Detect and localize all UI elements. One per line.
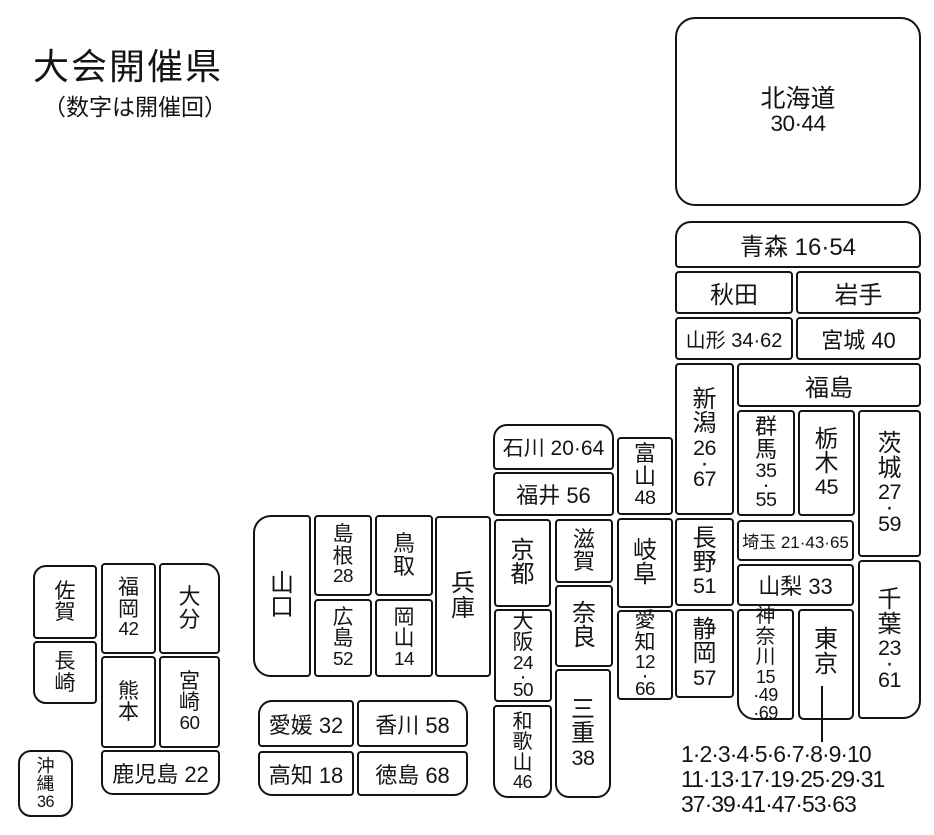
prefecture-tile-miyazaki: 宮崎60	[159, 656, 220, 748]
prefecture-tile-okinawa: 沖縄36	[18, 750, 73, 817]
prefecture-tile-kanagawa: 神奈川15·49·69	[737, 609, 794, 720]
prefecture-tile-nagasaki: 長崎	[33, 641, 97, 704]
prefecture-tile-tokyo: 東京	[798, 609, 854, 720]
prefecture-tile-niigata: 新潟26·67	[675, 363, 734, 515]
tokyo-host-numbers: 1·2·3·4·5·6·7·8·9·1011·13·17·19·25·29·31…	[681, 742, 884, 816]
prefecture-tile-okayama: 岡山14	[375, 599, 433, 677]
prefecture-tile-miyagi: 宮城 40	[796, 317, 921, 360]
prefecture-tile-kochi: 高知 18	[258, 751, 354, 796]
prefecture-tile-iwate: 岩手	[796, 271, 921, 314]
prefecture-tile-toyama: 富山48	[617, 437, 673, 515]
prefecture-tile-osaka: 大阪24·50	[494, 609, 552, 702]
prefecture-tile-wakayama: 和歌山46	[493, 705, 552, 798]
prefecture-tile-akita: 秋田	[675, 271, 793, 314]
prefecture-tile-hokkaido: 北海道30·44	[675, 17, 921, 206]
prefecture-tile-ibaraki: 茨城27·59	[858, 410, 921, 557]
prefecture-tile-shizuoka: 静岡57	[675, 609, 734, 698]
prefecture-tile-fukushima: 福島	[737, 363, 921, 407]
prefecture-tile-yamanashi: 山梨 33	[737, 564, 854, 606]
prefecture-tile-kyoto: 京都	[494, 519, 551, 607]
prefecture-tile-yamagata: 山形 34·62	[675, 317, 793, 360]
map-subtitle: （数字は開催回）	[43, 88, 227, 122]
prefecture-tile-hyogo: 兵庫	[435, 516, 491, 677]
prefecture-tile-tottori: 鳥取	[375, 515, 433, 596]
prefecture-tile-ishikawa: 石川 20·64	[493, 424, 614, 470]
prefecture-tile-nara: 奈良	[555, 585, 613, 667]
prefecture-tile-gunma: 群馬35·55	[737, 410, 795, 516]
prefecture-tile-oita: 大分	[159, 563, 220, 654]
prefecture-tile-gifu: 岐阜	[617, 518, 673, 608]
prefecture-tile-aomori: 青森 16·54	[675, 221, 921, 268]
tokyo-pointer-line	[821, 686, 823, 742]
prefecture-tile-kagoshima: 鹿児島 22	[101, 750, 220, 795]
prefecture-tile-chiba: 千葉23·61	[858, 560, 921, 719]
prefecture-tile-yamaguchi: 山口	[253, 515, 311, 677]
prefecture-tile-ehime: 愛媛 32	[258, 700, 354, 747]
prefecture-tile-hiroshima: 広島52	[314, 599, 372, 677]
prefecture-tile-kagawa: 香川 58	[357, 700, 468, 747]
prefecture-tile-kumamoto: 熊本	[101, 656, 156, 748]
prefecture-tile-tochigi: 栃木45	[798, 410, 855, 516]
prefecture-tile-shiga: 滋賀	[555, 519, 613, 583]
prefecture-tile-fukuoka: 福岡42	[101, 563, 156, 654]
japan-tile-map: 大会開催県 （数字は開催回） 北海道30·44 青森 16·54 秋田 岩手 山…	[0, 0, 934, 835]
map-title: 大会開催県	[33, 38, 223, 90]
prefecture-tile-saitama: 埼玉 21·43·65	[737, 520, 854, 561]
prefecture-tile-aichi: 愛知12·66	[617, 610, 673, 700]
prefecture-tile-shimane: 島根28	[314, 515, 372, 596]
prefecture-tile-fukui: 福井 56	[493, 472, 614, 516]
prefecture-tile-tokushima: 徳島 68	[357, 751, 468, 796]
prefecture-tile-nagano: 長野51	[675, 518, 734, 606]
prefecture-tile-saga: 佐賀	[33, 565, 97, 639]
prefecture-tile-mie: 三重38	[555, 669, 611, 798]
